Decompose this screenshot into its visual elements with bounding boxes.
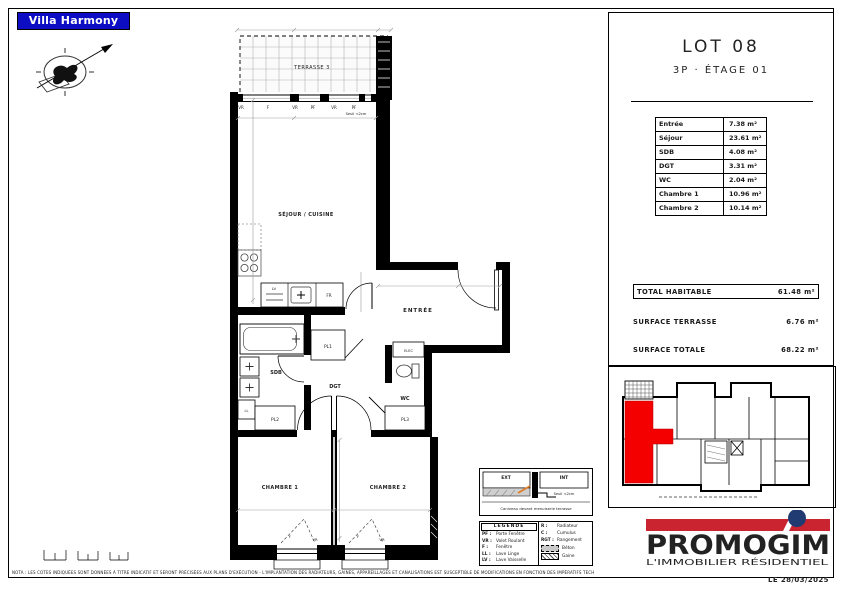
table-row: Chambre 2 10.14 m² bbox=[656, 202, 766, 215]
table-row: DGT 3.31 m² bbox=[656, 160, 766, 174]
wc-label: WC bbox=[400, 396, 410, 402]
legend-entry: F : Fenêtre bbox=[480, 545, 538, 552]
legend-entry: RGT : Rangement bbox=[539, 537, 592, 544]
sejour-label: SÉJOUR / CUISINE bbox=[278, 210, 334, 218]
lv-label: LV bbox=[272, 286, 277, 291]
pl2-label: PL2 bbox=[271, 417, 279, 423]
chambre2-label: CHAMBRE 2 bbox=[370, 485, 407, 491]
legend-left-column: LEGENDE PF : Porte Fenêtre VR : Volet Ro… bbox=[480, 522, 539, 565]
plan-date: LE 28/03/2025 bbox=[768, 576, 838, 584]
table-row: WC 2.04 m² bbox=[656, 174, 766, 188]
lot-type-floor: 3P · ÉTAGE 01 bbox=[609, 65, 833, 76]
ext-label: EXT bbox=[501, 475, 512, 481]
window-label: F bbox=[289, 534, 291, 539]
north-arrow-icon bbox=[25, 36, 117, 100]
table-row: SDB 4.08 m² bbox=[656, 146, 766, 160]
washbasin-icon bbox=[240, 357, 259, 376]
scale-ruler bbox=[42, 540, 152, 564]
window-label: F bbox=[357, 534, 359, 539]
legend-entry: PF : Porte Fenêtre bbox=[480, 532, 538, 539]
total-habitable: TOTAL HABITABLE 61.48 m² bbox=[633, 284, 819, 299]
sejour-door bbox=[346, 283, 372, 309]
legend-entry: R : Radiateur bbox=[539, 523, 592, 530]
table-row: Entrée 7.38 m² bbox=[656, 118, 766, 132]
window-label: PF bbox=[311, 105, 316, 110]
window-label: PF bbox=[352, 105, 357, 110]
window-label: VR bbox=[331, 105, 337, 110]
terrace-area: TERRASSE 3 bbox=[235, 28, 393, 100]
window-label: VR bbox=[238, 105, 244, 110]
project-banner: Villa Harmony bbox=[17, 12, 130, 30]
washbasin-icon bbox=[240, 378, 259, 397]
table-row: Séjour 23.61 m² bbox=[656, 132, 766, 146]
chambre1-label: CHAMBRE 1 bbox=[262, 485, 299, 491]
terrace-side-wall bbox=[376, 36, 392, 100]
fr-label: FR bbox=[326, 293, 331, 298]
seuil-detail-note: Seuil <2cm bbox=[554, 492, 575, 496]
beton-swatch-icon bbox=[541, 545, 559, 552]
window-label: VR bbox=[379, 537, 385, 542]
room-areas-table: Entrée 7.38 m² Séjour 23.61 m² SDB 4.08 … bbox=[655, 117, 767, 216]
entrance-door bbox=[458, 270, 499, 310]
surface-totale: SURFACE TOTALE 68.22 m² bbox=[633, 346, 819, 354]
legend-title: LEGENDE bbox=[481, 523, 537, 531]
window-label: VR bbox=[292, 105, 298, 110]
entree-label: ENTRÉE bbox=[403, 306, 433, 314]
key-plan bbox=[608, 366, 836, 508]
legend: LEGENDE PF : Porte Fenêtre VR : Volet Ro… bbox=[479, 521, 593, 566]
divider bbox=[631, 101, 813, 102]
legend-entry: LV : Lave Vaisselle bbox=[480, 558, 538, 565]
logo-wordmark: PROMOGIM bbox=[646, 530, 830, 561]
int-label: INT bbox=[560, 475, 569, 481]
sdb-label: SDB bbox=[270, 370, 282, 376]
surface-terrasse: SURFACE TERRASSE 6.76 m² bbox=[633, 318, 819, 326]
toilet-icon bbox=[397, 365, 412, 377]
threshold-detail: EXT INT Seuil <2cm Caniveau devant menui… bbox=[479, 468, 593, 516]
detail-caption: Caniveau devant menuiserie terrasse bbox=[500, 506, 572, 511]
table-row: Chambre 1 10.96 m² bbox=[656, 188, 766, 202]
promogim-logo: PROMOGIM L'IMMOBILIER RÉSIDENTIEL bbox=[646, 510, 830, 568]
seuil-note: Seuil <2cm bbox=[346, 112, 367, 116]
sdb-door bbox=[278, 356, 304, 382]
legend-entry: C : Cumulus bbox=[539, 530, 592, 537]
dgt-label: DGT bbox=[329, 384, 341, 390]
window-label: VR bbox=[312, 537, 318, 542]
terrace-label: TERRASSE 3 bbox=[293, 65, 330, 71]
terrace-dimension-line bbox=[235, 28, 393, 32]
gaine-swatch-icon bbox=[541, 553, 559, 560]
sejour-window-band: VR F VR PF VR PF Seuil <2cm bbox=[238, 94, 376, 116]
kitchen: LV FR bbox=[238, 224, 343, 307]
elec-label: ELEC bbox=[404, 349, 413, 353]
title-block: LOT 08 3P · ÉTAGE 01 Entrée 7.38 m² Séjo… bbox=[608, 12, 834, 366]
logo-tagline: L'IMMOBILIER RÉSIDENTIEL bbox=[646, 556, 829, 567]
dimension-lines bbox=[236, 98, 502, 542]
legend-swatch-beton: Béton bbox=[539, 544, 592, 552]
window-label: F bbox=[267, 105, 270, 110]
floor-plan: TERRASSE 3 VR F VR PF VR PF Seuil <2cm bbox=[228, 24, 516, 572]
wc-room: ELEC WC bbox=[369, 342, 424, 416]
hob-icon bbox=[241, 254, 258, 272]
bathroom: LL SDB bbox=[238, 324, 304, 419]
pl3-label: PL3 bbox=[401, 417, 409, 423]
lot-number: LOT 08 bbox=[609, 37, 833, 57]
legend-right-column: R : Radiateur C : Cumulus RGT : Rangemen… bbox=[539, 522, 592, 565]
pl1-label: PL1 bbox=[324, 344, 332, 350]
legend-swatch-gaine: Gaine bbox=[539, 552, 592, 560]
ll-label: LL bbox=[245, 409, 249, 413]
disclaimer-text: NOTA : LES COTES INDIQUÉES SONT DONNÉES … bbox=[12, 570, 594, 575]
